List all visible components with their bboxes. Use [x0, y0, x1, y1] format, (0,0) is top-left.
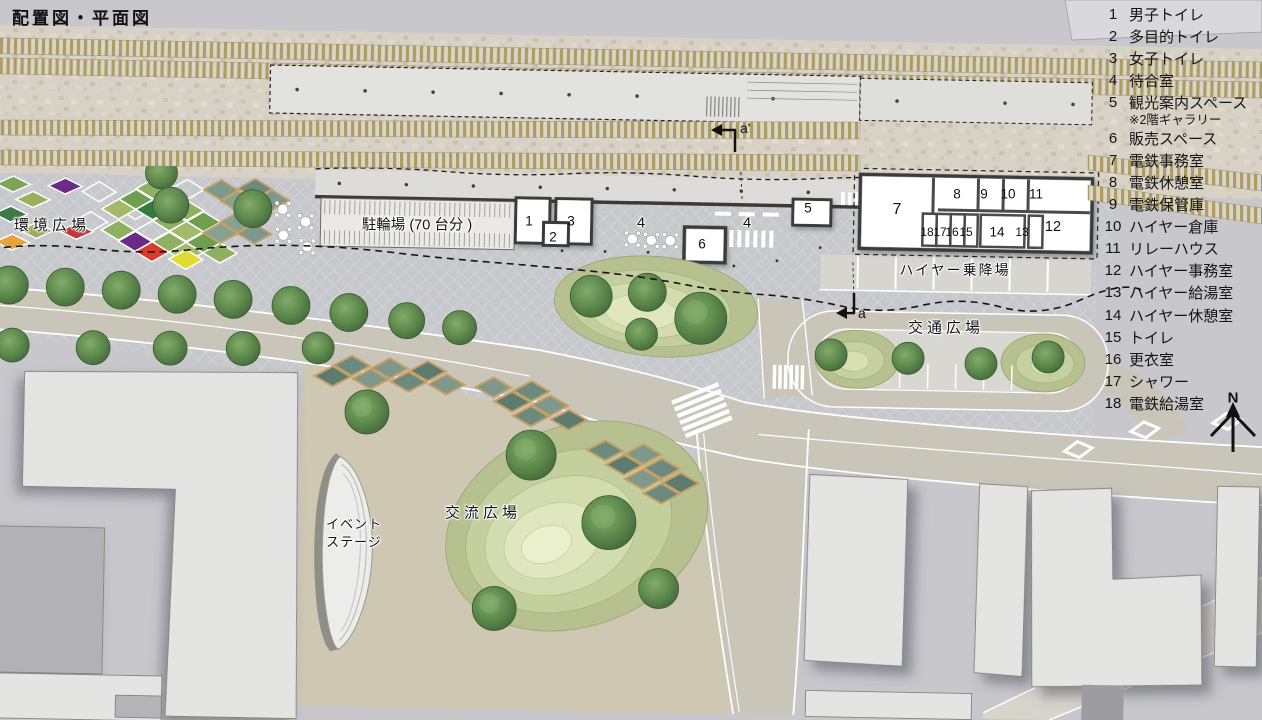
legend-item-13: 13ハイヤー給湯室 [1100, 282, 1233, 302]
plan-waiting-b: 4 [743, 215, 751, 232]
legend-item-1: 1男子トイレ [1100, 4, 1204, 24]
site-plan-drawing [0, 0, 1262, 720]
plan-room-17: 17 [933, 225, 946, 239]
plan-room-14: 14 [989, 225, 1004, 240]
legend-item-3: 3女子トイレ [1100, 48, 1204, 68]
plan-room-9: 9 [980, 187, 988, 202]
legend-item-15: 15トイレ [1100, 327, 1174, 347]
label-environment-plaza: 環境広場 [14, 214, 90, 235]
label-traffic-plaza: 交通広場 [908, 317, 984, 338]
legend-item-4: 4待合室 [1100, 70, 1174, 90]
legend-item-5-note: ※2階ギャラリー [1129, 109, 1221, 128]
label-section-a-prime: a' [740, 120, 750, 136]
plan-room-10: 10 [1000, 187, 1015, 202]
legend-item-9: 9電鉄保管庫 [1100, 194, 1204, 214]
plan-room-15: 15 [959, 225, 972, 239]
plan-room-2: 2 [549, 230, 557, 245]
legend-item-16: 16更衣室 [1100, 349, 1174, 369]
plan-room-5: 5 [804, 201, 812, 216]
plan-room-7: 7 [893, 201, 902, 219]
island-platform-east [860, 78, 1093, 124]
plan-room-18: 18 [920, 225, 933, 239]
label-north: N [1228, 390, 1239, 407]
plan-room-8: 8 [953, 187, 961, 202]
legend-item-11: 11リレーハウス [1100, 238, 1219, 258]
page-title: 配置図・平面図 [12, 4, 152, 29]
legend-item-7: 7電鉄事務室 [1100, 150, 1204, 170]
plan-room-12: 12 [1045, 219, 1061, 235]
plan-room-13: 13 [1015, 225, 1028, 239]
label-exchange-plaza: 交流広場 [445, 502, 521, 523]
legend-item-18: 18電鉄給湯室 [1100, 393, 1204, 413]
legend-item-8: 8電鉄休憩室 [1100, 172, 1204, 192]
label-hire-taxi-stand: ハイヤー乗降場 [899, 260, 1010, 280]
plan-room-6: 6 [698, 237, 706, 252]
label-event-stage-1: イベント [326, 514, 382, 533]
plan-room-16: 16 [945, 225, 958, 239]
plan-room-3: 3 [567, 214, 575, 229]
site-plan-canvas: 配置図・平面図 環境広場 駐輪場 (70 台分 ) ハイヤー乗降場 交通広場 交… [0, 0, 1262, 720]
plan-waiting-a: 4 [637, 215, 645, 232]
label-section-a: a [858, 305, 866, 321]
plan-room-11: 11 [1029, 187, 1043, 202]
plan-room-1: 1 [525, 214, 533, 229]
legend-item-2: 2多目的トイレ [1100, 26, 1219, 46]
room-5 [793, 199, 831, 226]
label-event-stage-2: ステージ [326, 532, 382, 551]
legend-item-10: 10ハイヤー倉庫 [1100, 216, 1218, 236]
railway-building [853, 168, 1099, 259]
legend-item-14: 14ハイヤー休憩室 [1100, 305, 1233, 325]
label-bicycle-parking: 駐輪場 (70 台分 ) [362, 214, 472, 235]
legend-item-6: 6販売スペース [1100, 128, 1217, 148]
legend-item-17: 17シャワー [1100, 371, 1189, 391]
legend-item-12: 12ハイヤー事務室 [1100, 260, 1233, 280]
